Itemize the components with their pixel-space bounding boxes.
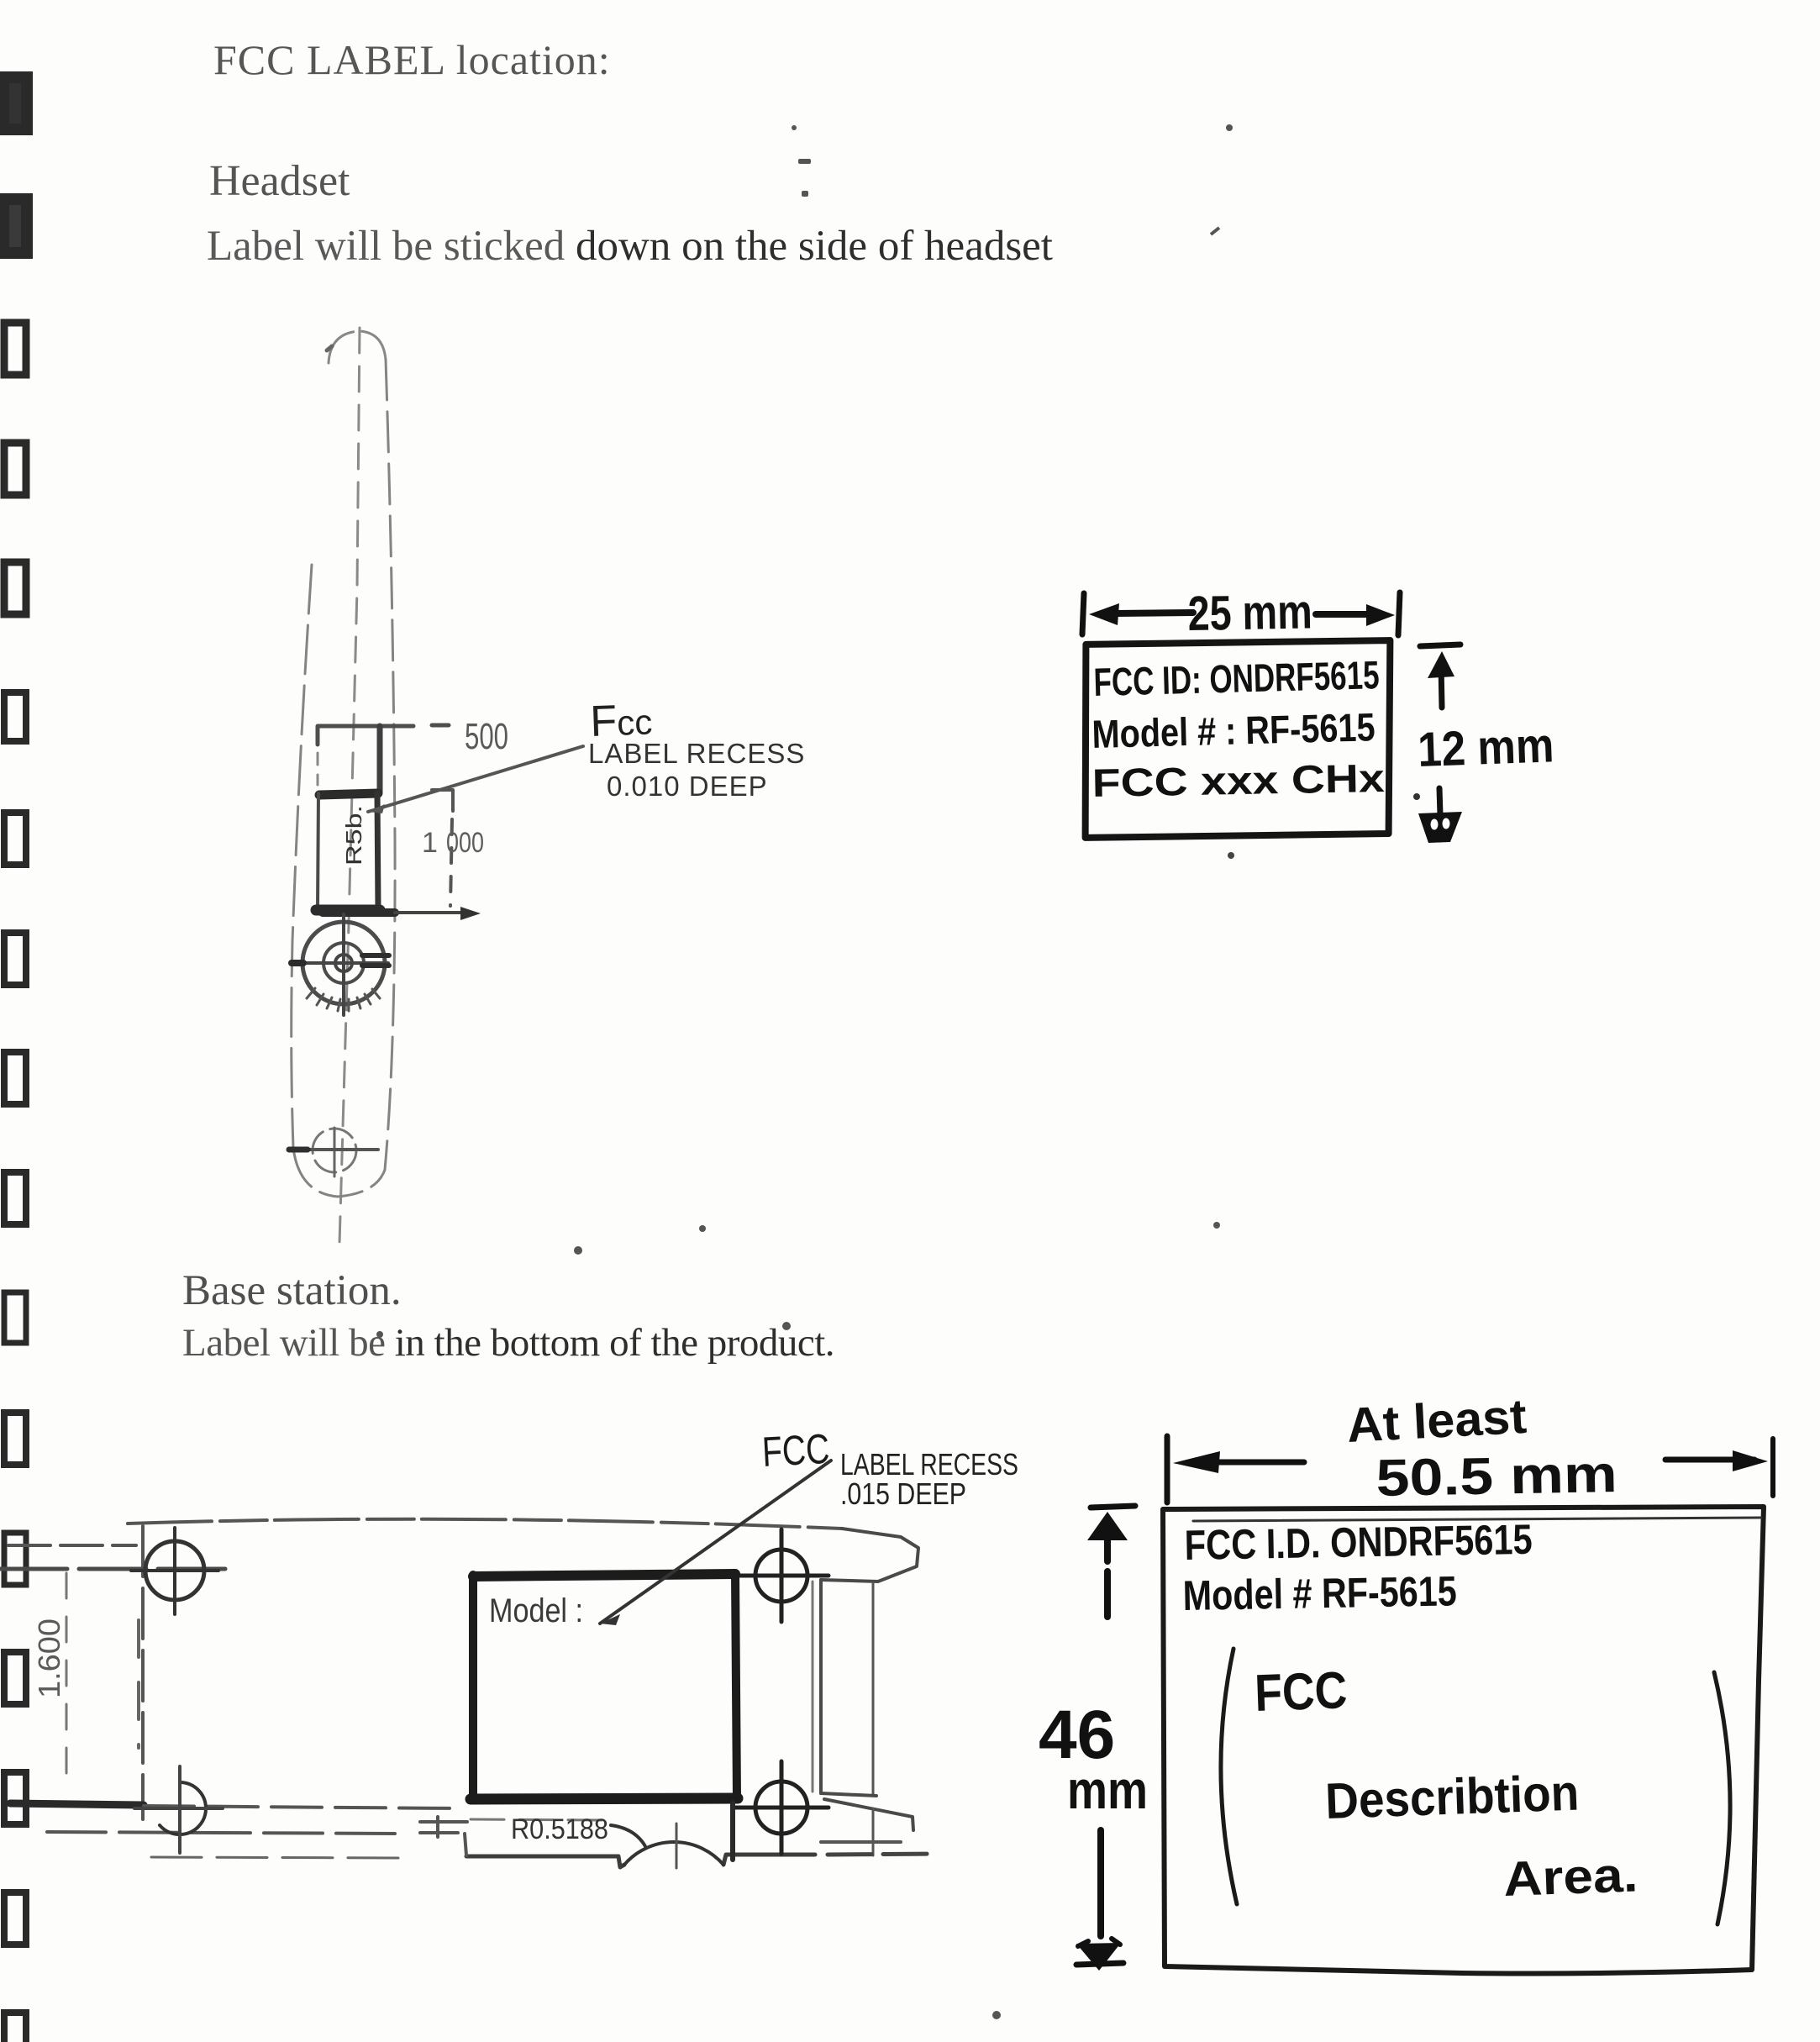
svg-text:0.010 DEEP: 0.010 DEEP: [607, 771, 768, 802]
svg-text:FCC ID: ONDRF5615: FCC ID: ONDRF5615: [1093, 652, 1380, 704]
svg-text:500: 500: [465, 716, 508, 757]
svg-text:25 mm: 25 mm: [1187, 584, 1312, 641]
svg-text:Model # RF-5615: Model # RF-5615: [1182, 1567, 1457, 1619]
svg-text:R0.5188: R0.5188: [511, 1813, 608, 1845]
svg-text:.015 DEEP: .015 DEEP: [840, 1476, 966, 1511]
svg-text:mm: mm: [1067, 1760, 1148, 1820]
svg-text:At least: At least: [1345, 1389, 1528, 1453]
svg-text:Describtion: Describtion: [1324, 1764, 1580, 1829]
svg-text:FCC: FCC: [1254, 1661, 1348, 1723]
svg-text:Area.: Area.: [1502, 1847, 1639, 1907]
svg-text:12 mm: 12 mm: [1417, 718, 1554, 777]
svg-text:1.600: 1.600: [32, 1618, 66, 1698]
svg-text:LABEL RECESS: LABEL RECESS: [588, 738, 805, 769]
svg-text:FCC I.D. ONDRF5615: FCC I.D. ONDRF5615: [1184, 1516, 1533, 1569]
svg-text:FCC xxx CHx: FCC xxx CHx: [1091, 755, 1385, 805]
svg-text:R5b.: R5b.: [341, 805, 366, 866]
svg-text:Model :: Model :: [489, 1592, 583, 1629]
svg-text:1: 1: [422, 827, 438, 859]
svg-text:Model # : RF-5615: Model # : RF-5615: [1091, 704, 1376, 756]
svg-text:50.5 mm: 50.5 mm: [1376, 1445, 1617, 1508]
svg-text:000: 000: [446, 827, 484, 859]
